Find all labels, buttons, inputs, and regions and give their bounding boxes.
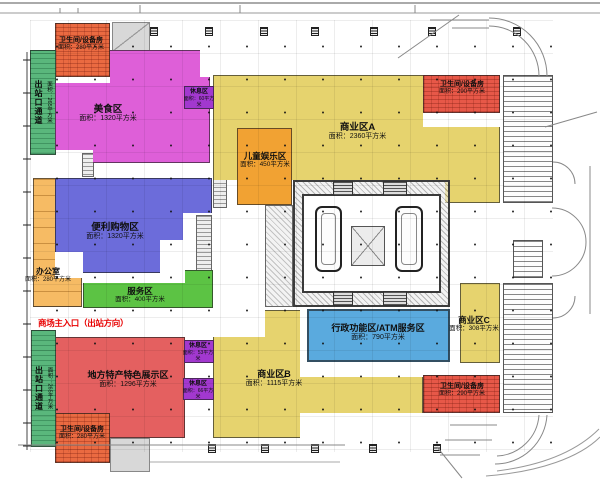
zone-exit-corridor-top: 出站口通道 面积：265平方米 bbox=[30, 50, 56, 155]
exit-corridor-top-label: 出站口通道 面积：265平方米 bbox=[31, 51, 55, 154]
floor-plan-canvas: 出站口通道 面积：265平方米 出站口通道 面积：265平方米 bbox=[0, 0, 600, 479]
escalator-bottom-left bbox=[333, 291, 353, 306]
column-grid-symbol bbox=[260, 27, 268, 36]
elevator-cab-left bbox=[321, 213, 336, 265]
stairwell-center-mid bbox=[213, 178, 227, 208]
column-grid-symbol bbox=[208, 444, 216, 453]
column-grid-symbol bbox=[311, 444, 319, 453]
column-grid-symbol bbox=[261, 444, 269, 453]
zone-admin-atm bbox=[307, 309, 450, 362]
zone-convenience bbox=[55, 178, 212, 273]
stairwell-left-middle bbox=[82, 153, 94, 177]
column-grid-symbol bbox=[369, 444, 377, 453]
escalator-bottom-right bbox=[383, 291, 407, 306]
column-grid-symbol bbox=[205, 27, 213, 36]
column-grid-symbol bbox=[428, 27, 436, 36]
elevator-core-left bbox=[315, 206, 342, 272]
zone-commercial-c bbox=[460, 283, 500, 363]
zone-rest-middle bbox=[184, 340, 214, 363]
column-grid-symbol bbox=[150, 27, 158, 36]
escalator-top-left bbox=[333, 181, 353, 196]
atrium-center-feature bbox=[351, 226, 385, 266]
stair-band-right-upper bbox=[503, 75, 553, 203]
stairwell-center-lower bbox=[196, 215, 212, 272]
stair-band-right-lower bbox=[503, 283, 553, 413]
zone-rest-top bbox=[184, 86, 214, 109]
zone-wc-top-left bbox=[55, 23, 110, 77]
elevator-core-right bbox=[395, 206, 423, 272]
stair-block-bottom-center bbox=[110, 438, 150, 472]
column-grid-symbol bbox=[433, 444, 441, 453]
column-grid-symbol bbox=[311, 27, 319, 36]
stair-block-top-left bbox=[112, 22, 150, 52]
stair-band-right-middle bbox=[513, 240, 543, 278]
zone-name: 出站口通道 bbox=[34, 366, 45, 411]
zone-wc-bottom-right bbox=[423, 375, 500, 413]
zone-wc-top-right bbox=[423, 75, 500, 113]
elevator-cab-right bbox=[401, 213, 417, 265]
escalator-top-right bbox=[383, 181, 407, 196]
main-entrance-label: 商场主入口（出站方向） bbox=[38, 317, 128, 329]
zone-area: 面积：265平方米 bbox=[46, 367, 54, 409]
column-grid-symbol bbox=[513, 27, 521, 36]
zone-area: 面积：265平方米 bbox=[45, 81, 53, 123]
zone-children bbox=[237, 128, 292, 205]
zone-exit-corridor-bottom: 出站口通道 面积：265平方米 bbox=[31, 330, 56, 447]
zone-rest-bottom bbox=[183, 378, 214, 400]
zone-wc-bottom-left bbox=[55, 413, 110, 463]
zone-service bbox=[83, 270, 213, 308]
column-grid-symbol bbox=[370, 27, 378, 36]
exit-corridor-bottom-label: 出站口通道 面积：265平方米 bbox=[32, 331, 55, 446]
atrium-hatch-west bbox=[265, 205, 293, 307]
zone-name: 出站口通道 bbox=[33, 80, 44, 125]
